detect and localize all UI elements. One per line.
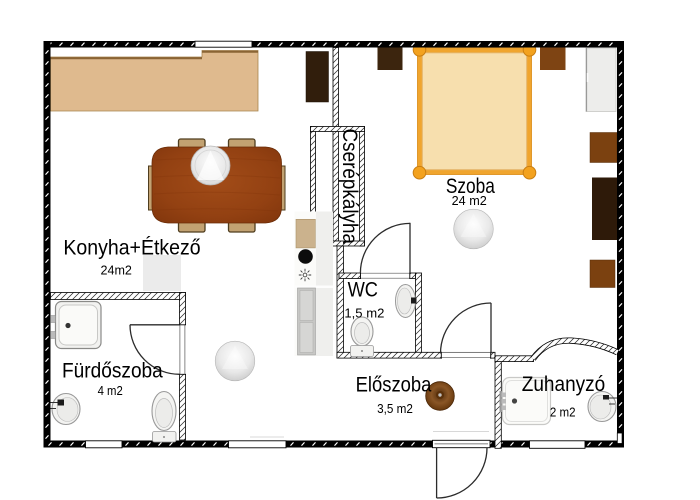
svg-text:Konyha+Étkező: Konyha+Étkező bbox=[63, 236, 200, 259]
svg-text:1,5 m2: 1,5 m2 bbox=[344, 306, 384, 321]
svg-text:3,5 m2: 3,5 m2 bbox=[377, 401, 413, 416]
svg-text:24m2: 24m2 bbox=[101, 263, 132, 278]
svg-text:4 m2: 4 m2 bbox=[98, 383, 123, 398]
svg-text:Fürdőszoba: Fürdőszoba bbox=[62, 359, 163, 382]
svg-text:WC: WC bbox=[348, 278, 378, 301]
svg-text:Előszoba: Előszoba bbox=[356, 373, 432, 396]
svg-text:2 m2: 2 m2 bbox=[550, 405, 576, 420]
svg-text:Cserépkályha: Cserépkályha bbox=[338, 129, 361, 245]
svg-text:Zuhanyzó: Zuhanyzó bbox=[522, 373, 606, 396]
svg-text:24 m2: 24 m2 bbox=[452, 193, 487, 208]
